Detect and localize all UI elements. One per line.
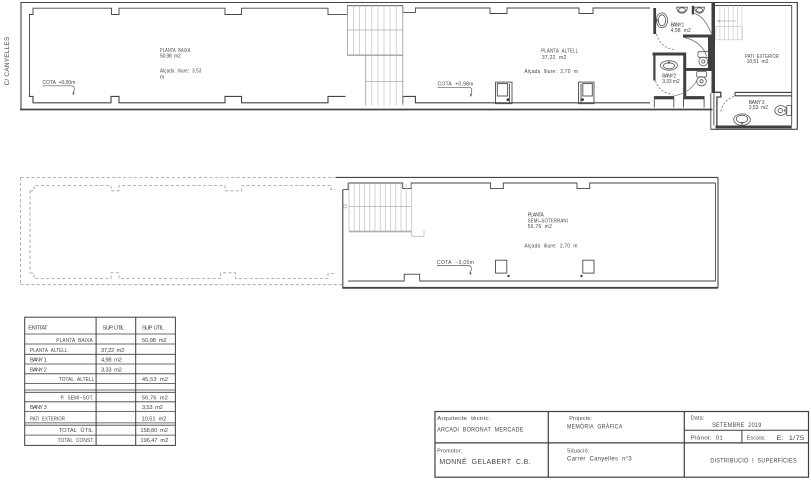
svg-text:ARCADI BORONAT MERCADE: ARCADI BORONAT MERCADE xyxy=(437,428,523,434)
svg-text:PLANTA ALTELL: PLANTA ALTELL xyxy=(541,49,578,55)
svg-text:3,33 m2: 3,33 m2 xyxy=(662,79,680,85)
svg-text:COTA +0,00m: COTA +0,00m xyxy=(43,80,76,86)
svg-text:SUP. ÚTIL: SUP. ÚTIL xyxy=(142,324,165,331)
svg-text:P. SEMI−SOT.: P. SEMI−SOT. xyxy=(61,395,94,401)
svg-text:TOTAL ÚTIL: TOTAL ÚTIL xyxy=(59,427,94,434)
svg-text:4,98 m2: 4,98 m2 xyxy=(671,28,692,34)
svg-text:PLANTA: PLANTA xyxy=(528,212,545,218)
svg-text:PLANTA ALTELL: PLANTA ALTELL xyxy=(30,348,68,354)
svg-text:COTA −3,05m: COTA −3,05m xyxy=(437,260,474,266)
svg-text:MONNÉ GELABERT C.B.: MONNÉ GELABERT C.B. xyxy=(439,457,531,466)
svg-text:Alçada lliure: 3,53: Alçada lliure: 3,53 xyxy=(160,69,202,75)
svg-text:Alçada lliure: 2,70 m: Alçada lliure: 2,70 m xyxy=(524,69,578,75)
svg-text:Projecte:: Projecte: xyxy=(569,416,592,422)
svg-text:10,51 m2: 10,51 m2 xyxy=(747,59,769,65)
svg-text:BANY 3: BANY 3 xyxy=(30,405,47,411)
svg-text:m: m xyxy=(160,75,164,81)
svg-text:45,53 m2: 45,53 m2 xyxy=(142,377,168,383)
svg-text:Alçada lliure: 2,70 m: Alçada lliure: 2,70 m xyxy=(524,244,578,250)
svg-text:BANY 2: BANY 2 xyxy=(30,367,47,373)
svg-text:C/ CANYELLES: C/ CANYELLES xyxy=(4,37,11,86)
svg-text:Data:: Data: xyxy=(691,415,705,421)
svg-text:3,53 m2: 3,53 m2 xyxy=(142,405,163,411)
svg-text:Situació:: Situació: xyxy=(567,448,589,454)
svg-text:SETEMBRE 2019: SETEMBRE 2019 xyxy=(712,423,762,429)
svg-text:Escala:: Escala: xyxy=(747,435,766,441)
svg-text:Plànol: 01: Plànol: 01 xyxy=(691,436,724,442)
svg-text:158,80 m2: 158,80 m2 xyxy=(140,428,168,434)
svg-text:DISTRIBUCIÓ I SUPERFÍCIES: DISTRIBUCIÓ I SUPERFÍCIES xyxy=(710,457,797,464)
svg-text:Arquitecte tècnic:: Arquitecte tècnic: xyxy=(437,416,491,422)
svg-text:TOTAL CONST.: TOTAL CONST. xyxy=(58,438,95,444)
svg-text:56,76 m2: 56,76 m2 xyxy=(142,395,168,401)
svg-text:37,22 m2: 37,22 m2 xyxy=(101,348,124,354)
svg-text:196,47 m2: 196,47 m2 xyxy=(140,438,168,444)
svg-text:37,22 m2: 37,22 m2 xyxy=(542,55,567,61)
svg-text:Promotor:: Promotor: xyxy=(437,448,462,454)
svg-text:PLANTA BAIXA: PLANTA BAIXA xyxy=(56,338,93,344)
svg-text:COTA +0,98m: COTA +0,98m xyxy=(438,82,474,88)
svg-text:E: 1/75: E: 1/75 xyxy=(776,435,804,442)
svg-text:56,76 m2: 56,76 m2 xyxy=(528,224,553,230)
svg-text:Carrer Canyelles n°3: Carrer Canyelles n°3 xyxy=(567,456,632,462)
svg-text:3,53 m2: 3,53 m2 xyxy=(749,105,769,111)
svg-text:MEMÒRIA GRÀFICA: MEMÒRIA GRÀFICA xyxy=(567,424,623,431)
svg-text:ENTITAT: ENTITAT xyxy=(28,325,48,331)
svg-text:50,98 m2: 50,98 m2 xyxy=(142,338,167,344)
svg-text:4,98 m2: 4,98 m2 xyxy=(101,358,122,364)
svg-text:BANY 1: BANY 1 xyxy=(30,358,47,364)
svg-text:SUP. ÚTIL: SUP. ÚTIL xyxy=(103,324,126,331)
svg-text:3,33 m2: 3,33 m2 xyxy=(101,367,122,373)
svg-text:10,51 m2: 10,51 m2 xyxy=(142,416,167,422)
svg-text:TOTAL ALTELL: TOTAL ALTELL xyxy=(59,377,95,383)
svg-text:PATI EXTERIOR: PATI EXTERIOR xyxy=(30,416,65,422)
svg-text:50,98 m2: 50,98 m2 xyxy=(160,54,181,60)
